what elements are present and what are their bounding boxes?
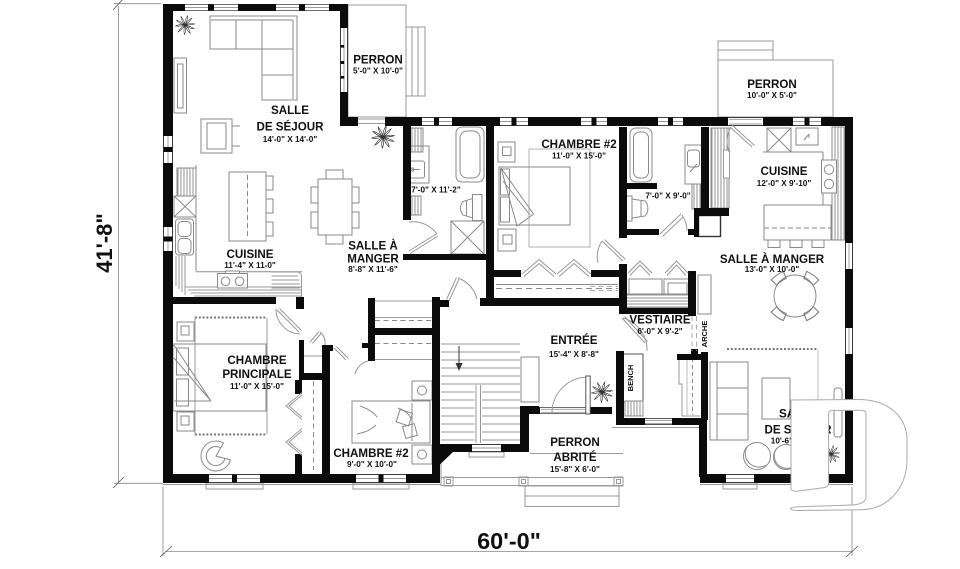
svg-text:PERRON: PERRON — [353, 54, 403, 67]
svg-text:ABRITÉ: ABRITÉ — [553, 451, 596, 464]
svg-text:5'-0" X 10'-0": 5'-0" X 10'-0" — [353, 67, 403, 76]
svg-text:ARCHE: ARCHE — [700, 321, 709, 348]
svg-text:11'-0" X 15'-0": 11'-0" X 15'-0" — [552, 152, 606, 161]
svg-text:12'-0" X 9'-10": 12'-0" X 9'-10" — [757, 179, 812, 188]
svg-text:MANGER: MANGER — [347, 253, 399, 266]
svg-text:60'-0": 60'-0" — [477, 528, 541, 554]
svg-text:SALLE À: SALLE À — [348, 240, 398, 253]
svg-text:CHAMBRE: CHAMBRE — [227, 354, 287, 367]
svg-text:BENCH: BENCH — [626, 365, 635, 392]
svg-text:14'-0" X 14'-0": 14'-0" X 14'-0" — [263, 135, 318, 144]
svg-text:8'-8" X 11'-6": 8'-8" X 11'-6" — [348, 265, 398, 274]
svg-text:CUISINE: CUISINE — [760, 165, 807, 178]
svg-text:10'-0" X 5'-0": 10'-0" X 5'-0" — [747, 91, 797, 100]
svg-text:SALLE: SALLE — [271, 104, 309, 117]
svg-text:CHAMBRE #2: CHAMBRE #2 — [541, 138, 616, 151]
svg-text:15'-4" X 8'-8": 15'-4" X 8'-8" — [549, 350, 599, 359]
svg-text:11'-4" X 11-0": 11'-4" X 11-0" — [224, 261, 276, 270]
svg-text:CHAMBRE #2: CHAMBRE #2 — [333, 447, 408, 460]
svg-text:15'-8" X 6'-0": 15'-8" X 6'-0" — [550, 465, 600, 474]
svg-text:11'-0" X 15'-0": 11'-0" X 15'-0" — [230, 382, 284, 391]
svg-text:7'-0" X 9'-0": 7'-0" X 9'-0" — [645, 192, 690, 201]
svg-text:CUISINE: CUISINE — [226, 248, 273, 261]
svg-text:7'-0" X 11'-2": 7'-0" X 11'-2" — [411, 186, 461, 195]
svg-text:6'-0" X 9'-2": 6'-0" X 9'-2" — [637, 327, 682, 336]
svg-text:9'-0" X 10'-0": 9'-0" X 10'-0" — [347, 460, 397, 469]
svg-text:13'-0" X 10'-0": 13'-0" X 10'-0" — [745, 265, 800, 274]
svg-text:VESTIAIRE: VESTIAIRE — [629, 314, 690, 327]
svg-text:41'-8": 41'-8" — [92, 213, 117, 273]
svg-text:PRINCIPALE: PRINCIPALE — [222, 368, 292, 381]
svg-text:PERRON: PERRON — [747, 78, 797, 91]
svg-text:ENTRÉE: ENTRÉE — [550, 334, 597, 347]
svg-text:DE SÉJOUR: DE SÉJOUR — [256, 121, 324, 134]
svg-text:PERRON: PERRON — [550, 436, 600, 449]
